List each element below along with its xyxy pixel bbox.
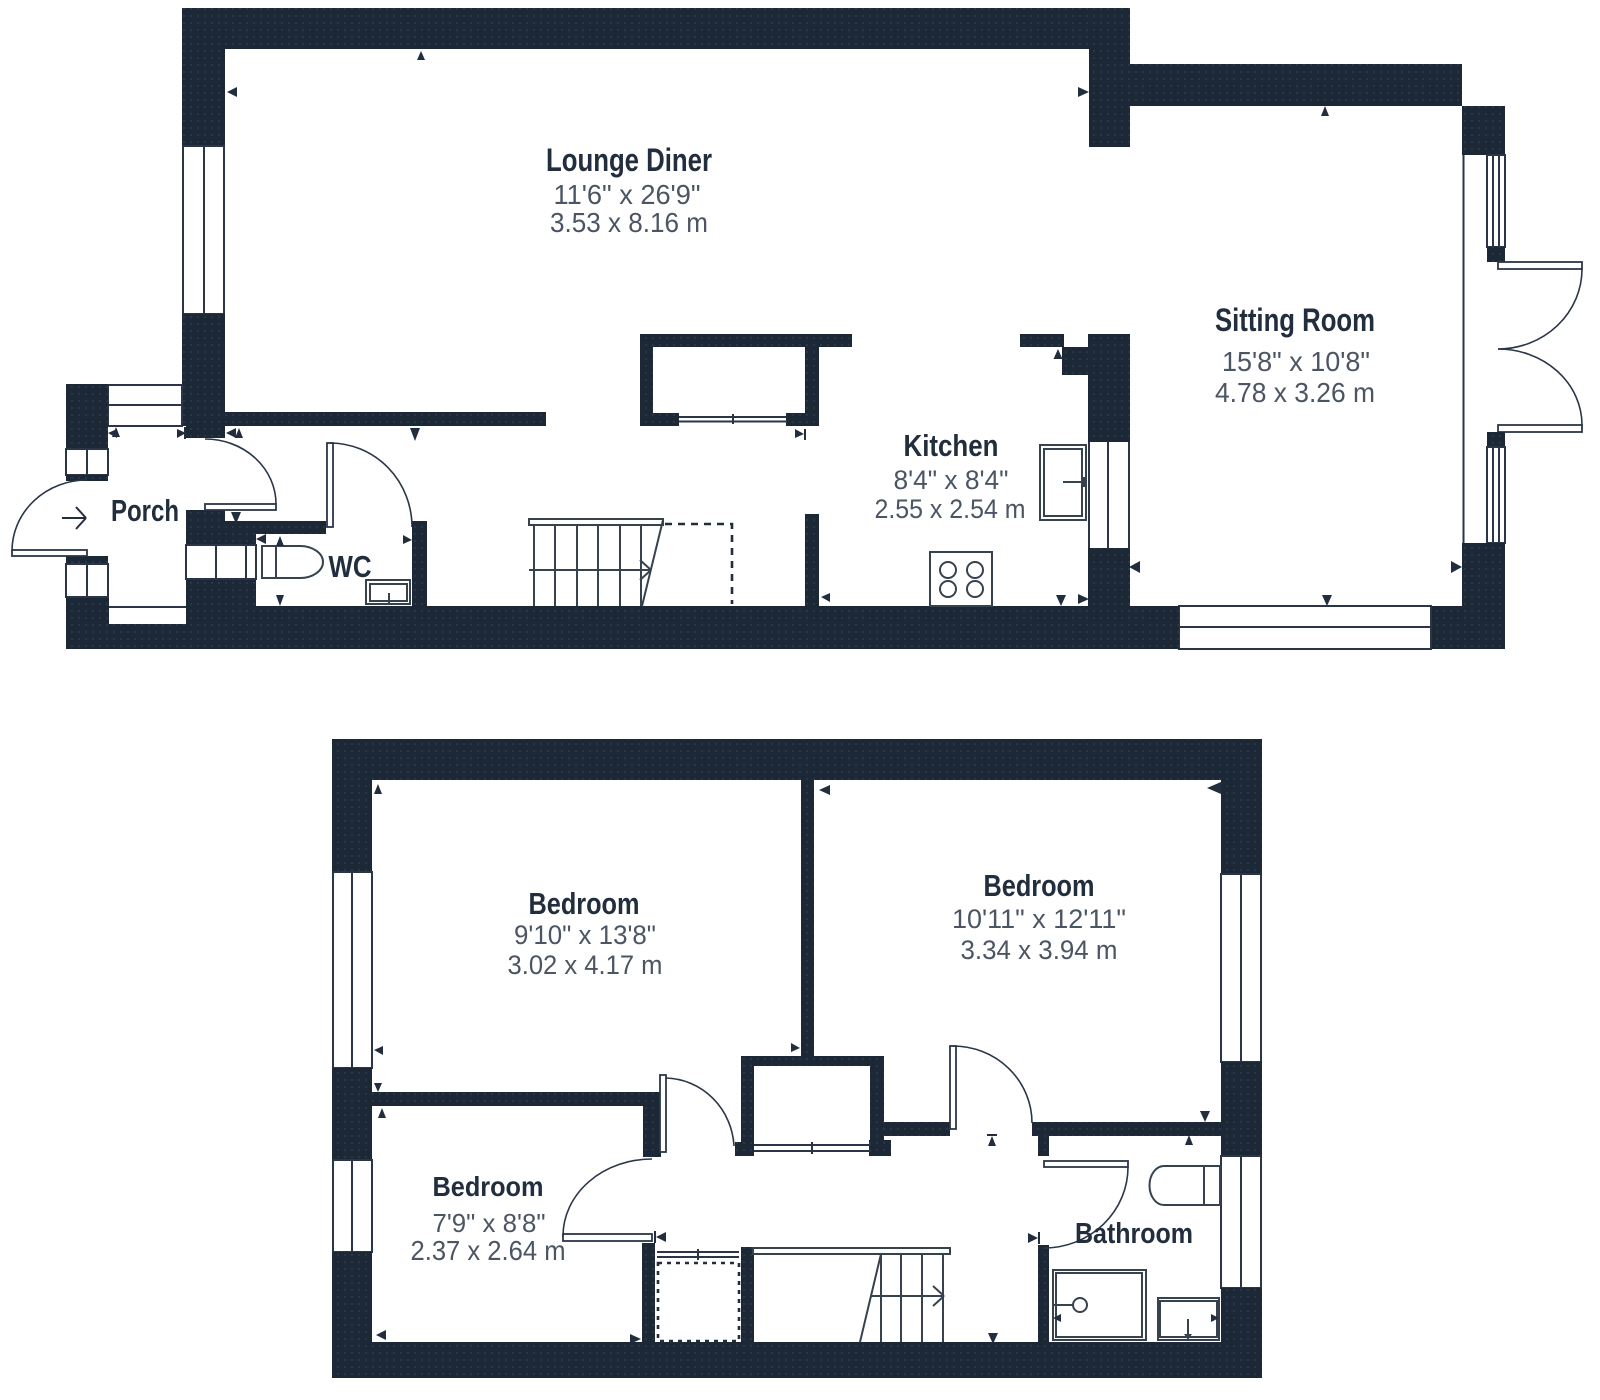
svg-text:Bedroom: Bedroom — [433, 1171, 544, 1202]
svg-text:3.53 x 8.16 m: 3.53 x 8.16 m — [550, 207, 708, 238]
svg-text:Sitting Room: Sitting Room — [1215, 302, 1375, 338]
svg-text:3.02 x 4.17 m: 3.02 x 4.17 m — [508, 950, 663, 980]
svg-text:15'8" x 10'8": 15'8" x 10'8" — [1222, 346, 1370, 377]
svg-text:Bathroom: Bathroom — [1075, 1218, 1193, 1250]
svg-text:11'6" x 26'9": 11'6" x 26'9" — [554, 179, 701, 210]
svg-text:Bedroom: Bedroom — [984, 868, 1095, 903]
svg-text:3.34 x 3.94 m: 3.34 x 3.94 m — [961, 935, 1118, 965]
svg-text:2.55 x 2.54 m: 2.55 x 2.54 m — [875, 494, 1026, 524]
svg-text:Lounge Diner: Lounge Diner — [546, 142, 712, 178]
svg-text:Kitchen: Kitchen — [904, 428, 999, 463]
svg-text:7'9" x 8'8": 7'9" x 8'8" — [433, 1208, 546, 1238]
svg-text:8'4" x 8'4": 8'4" x 8'4" — [894, 465, 1009, 495]
svg-text:2.37 x 2.64 m: 2.37 x 2.64 m — [411, 1235, 566, 1266]
svg-text:9'10" x 13'8": 9'10" x 13'8" — [514, 920, 656, 950]
svg-text:10'11" x 12'11": 10'11" x 12'11" — [952, 904, 1126, 934]
svg-text:Porch: Porch — [111, 493, 179, 528]
svg-text:Bedroom: Bedroom — [529, 886, 640, 921]
svg-text:WC: WC — [329, 549, 372, 584]
svg-text:4.78 x 3.26 m: 4.78 x 3.26 m — [1215, 377, 1375, 408]
